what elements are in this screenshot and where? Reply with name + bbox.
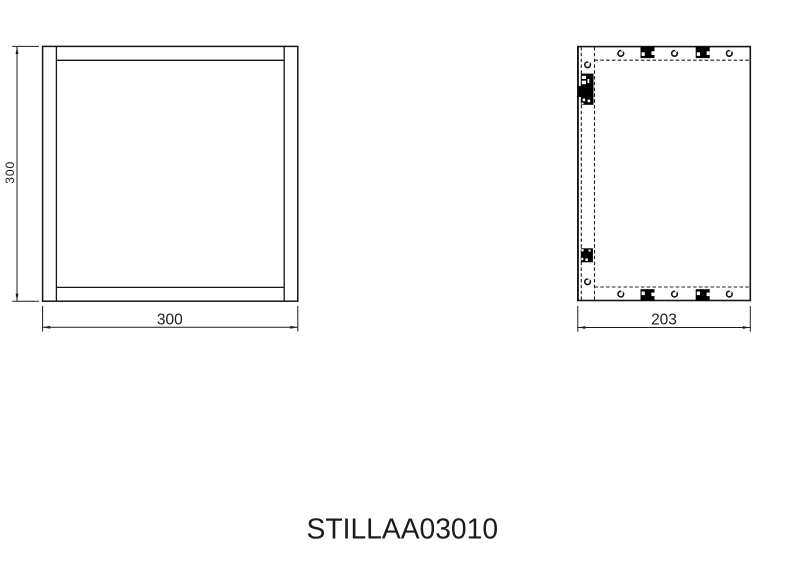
svg-text:300: 300 [157,311,183,328]
svg-text:300: 300 [3,161,17,183]
svg-text:203: 203 [651,311,677,328]
svg-text:STILLAA03010: STILLAA03010 [307,513,499,545]
